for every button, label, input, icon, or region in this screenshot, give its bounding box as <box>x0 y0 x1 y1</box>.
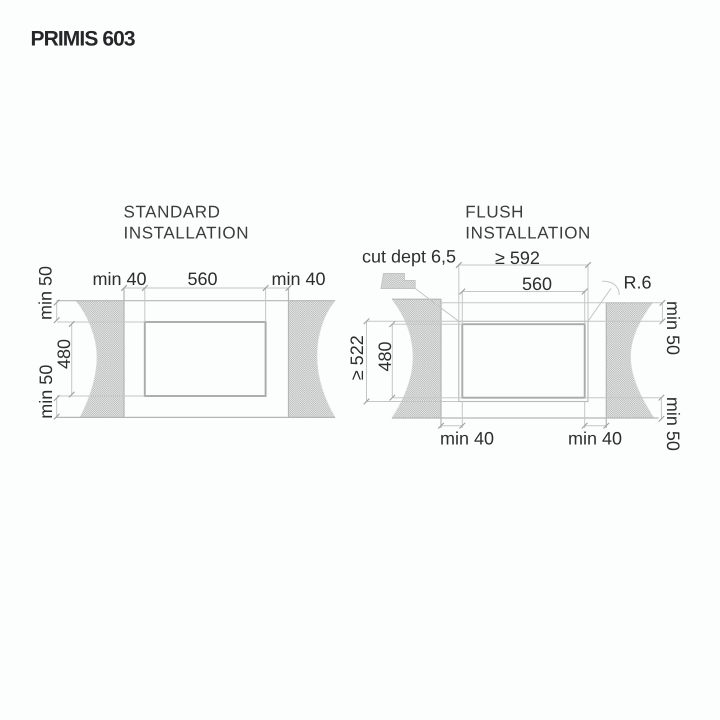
svg-text:560: 560 <box>187 269 217 289</box>
svg-text:min 50: min 50 <box>663 397 683 451</box>
svg-text:≥ 592: ≥ 592 <box>495 248 540 268</box>
svg-text:FLUSH: FLUSH <box>465 203 524 222</box>
svg-text:min 40: min 40 <box>271 269 325 289</box>
svg-text:560: 560 <box>522 274 552 294</box>
svg-text:≥ 522: ≥ 522 <box>347 335 367 380</box>
svg-text:min 50: min 50 <box>36 365 56 419</box>
svg-text:cut dept 6,5: cut dept 6,5 <box>362 247 456 267</box>
svg-text:INSTALLATION: INSTALLATION <box>465 224 591 243</box>
svg-text:INSTALLATION: INSTALLATION <box>124 224 250 243</box>
svg-text:R.6: R.6 <box>624 273 652 293</box>
svg-text:min 50: min 50 <box>36 266 56 320</box>
svg-text:min 40: min 40 <box>440 429 494 449</box>
svg-text:min 40: min 40 <box>92 269 146 289</box>
svg-text:PRIMIS 603: PRIMIS 603 <box>31 28 135 51</box>
svg-text:min 40: min 40 <box>568 429 622 449</box>
svg-text:STANDARD: STANDARD <box>124 203 221 222</box>
svg-text:min 50: min 50 <box>663 301 683 355</box>
svg-text:480: 480 <box>54 339 74 369</box>
svg-text:480: 480 <box>375 341 395 371</box>
